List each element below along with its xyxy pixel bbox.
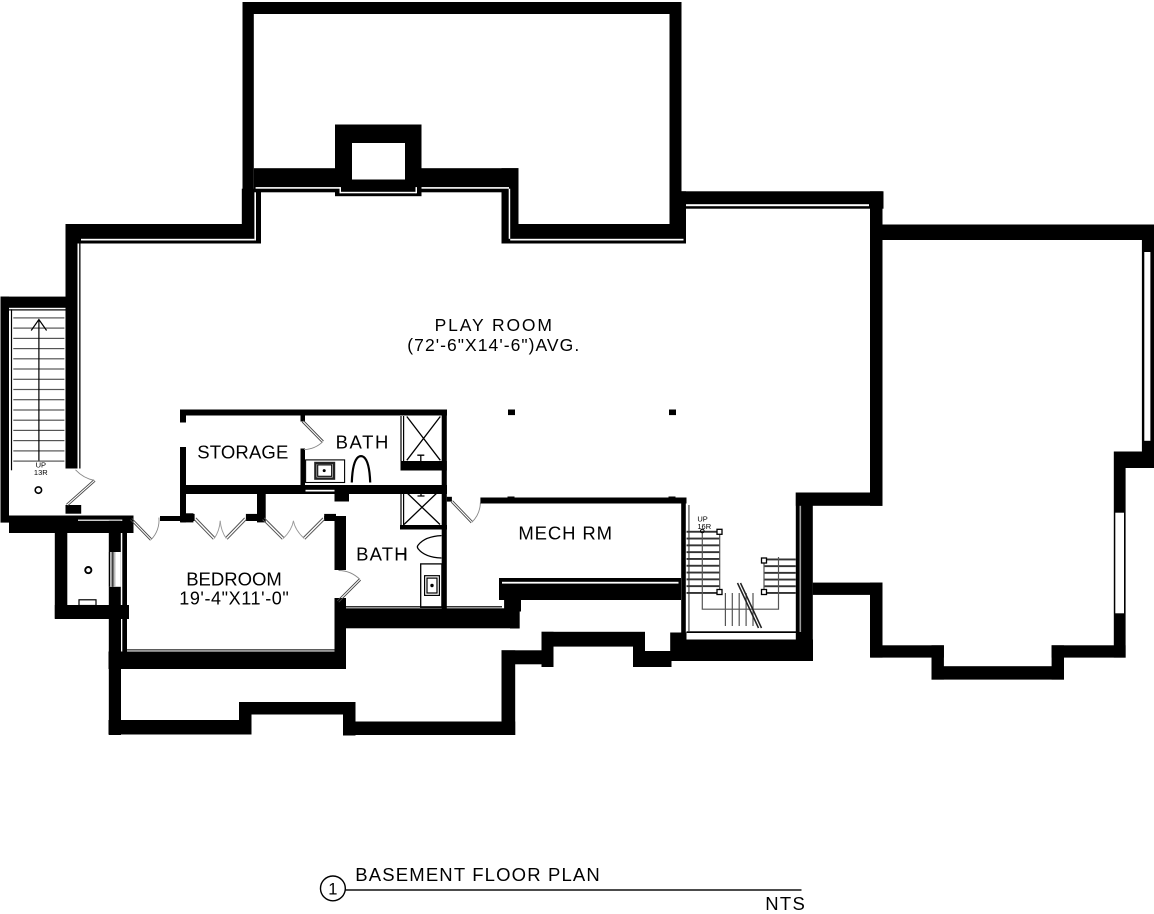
- svg-text:PLAY ROOM: PLAY ROOM: [435, 315, 552, 335]
- svg-text:BEDROOM: BEDROOM: [186, 568, 282, 589]
- svg-text:BATH: BATH: [336, 432, 389, 453]
- svg-text:BATH: BATH: [356, 544, 408, 565]
- svg-text:1: 1: [328, 881, 337, 899]
- svg-text:STORAGE: STORAGE: [197, 442, 288, 463]
- svg-text:BASEMENT FLOOR PLAN: BASEMENT FLOOR PLAN: [355, 864, 600, 885]
- svg-text:NTS: NTS: [765, 893, 805, 914]
- svg-text:13R: 13R: [34, 468, 48, 477]
- svg-text:19'-4"X11'-0": 19'-4"X11'-0": [179, 589, 289, 609]
- svg-text:(72'-6"X14'-6")AVG.: (72'-6"X14'-6")AVG.: [407, 335, 579, 355]
- svg-text:MECH RM: MECH RM: [518, 523, 612, 544]
- svg-text:16R: 16R: [697, 522, 711, 531]
